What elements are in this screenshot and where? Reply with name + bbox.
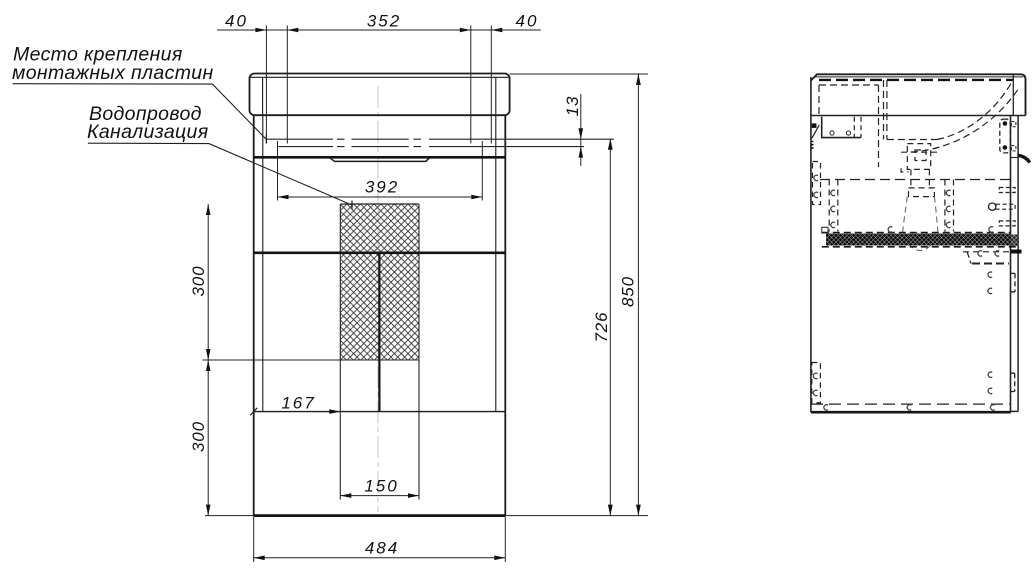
svg-text:монтажных пластин: монтажных пластин [12, 62, 214, 84]
svg-text:850: 850 [619, 276, 638, 307]
svg-text:300: 300 [189, 421, 208, 452]
svg-text:150: 150 [364, 477, 398, 496]
svg-text:726: 726 [592, 311, 611, 342]
svg-text:40: 40 [225, 12, 248, 31]
svg-text:484: 484 [365, 539, 399, 558]
svg-text:13: 13 [563, 96, 582, 117]
svg-text:392: 392 [365, 178, 399, 197]
svg-text:Канализация: Канализация [87, 121, 209, 143]
svg-text:300: 300 [189, 265, 208, 296]
svg-text:167: 167 [281, 394, 315, 413]
svg-text:352: 352 [367, 12, 401, 31]
svg-text:40: 40 [516, 12, 539, 31]
